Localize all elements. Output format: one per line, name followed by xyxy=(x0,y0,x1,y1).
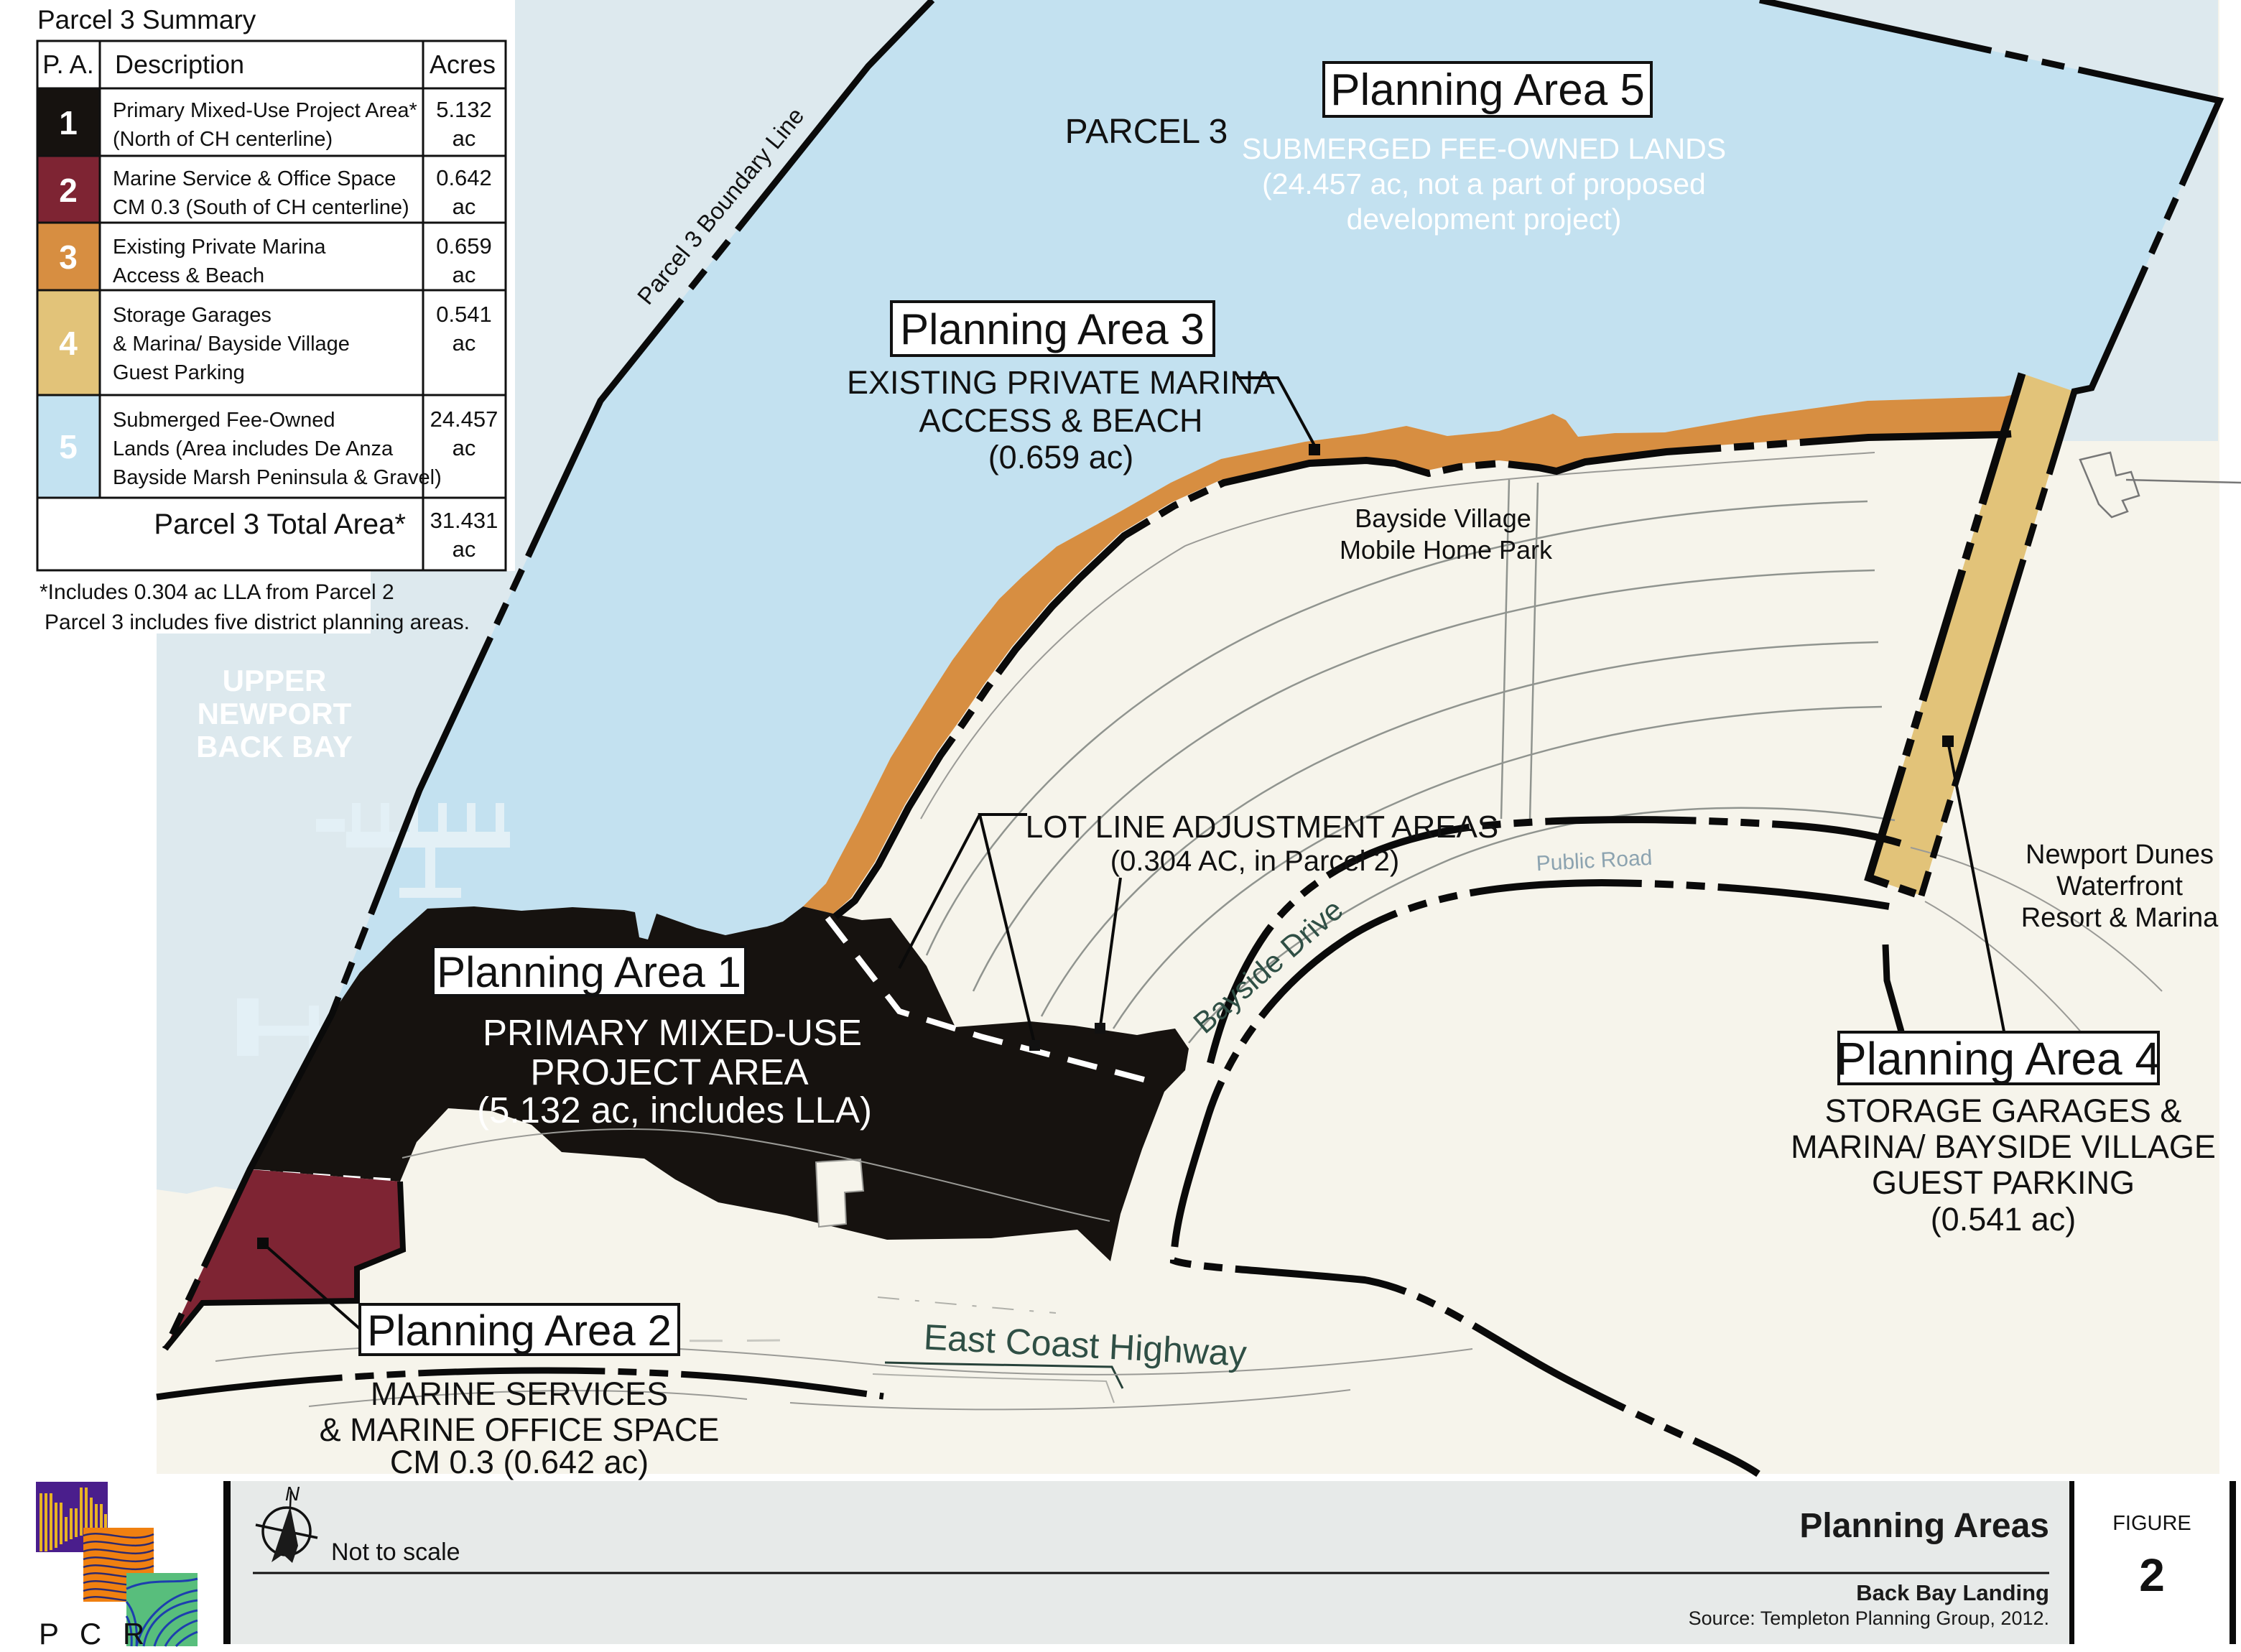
svg-text:ac: ac xyxy=(453,435,476,460)
svg-text:Back Bay Landing: Back Bay Landing xyxy=(1856,1580,2049,1605)
svg-text:CM 0.3 (South of CH centerline: CM 0.3 (South of CH centerline) xyxy=(113,196,409,219)
svg-text:Bayside Village: Bayside Village xyxy=(1355,504,1531,533)
svg-text:Mobile Home Park: Mobile Home Park xyxy=(1340,535,1553,565)
svg-text:Submerged Fee-Owned: Submerged Fee-Owned xyxy=(113,409,335,432)
svg-text:(24.457 ac, not a part of prop: (24.457 ac, not a part of proposed xyxy=(1262,167,1706,200)
svg-text:MARINA/ BAYSIDE VILLAGE: MARINA/ BAYSIDE VILLAGE xyxy=(1791,1128,2216,1165)
svg-text:Waterfront: Waterfront xyxy=(2056,871,2183,901)
svg-text:PARCEL 3: PARCEL 3 xyxy=(1065,113,1228,151)
svg-text:LOT LINE ADJUSTMENT AREAS: LOT LINE ADJUSTMENT AREAS xyxy=(1026,809,1499,845)
svg-text:(North of CH centerline): (North of CH centerline) xyxy=(113,128,333,151)
svg-text:Bayside Marsh Peninsula & Grav: Bayside Marsh Peninsula & Gravel) xyxy=(113,466,442,489)
svg-text:24.457: 24.457 xyxy=(430,407,498,432)
svg-text:NEWPORT: NEWPORT xyxy=(198,697,352,730)
svg-text:Existing Private Marina: Existing Private Marina xyxy=(113,236,326,259)
svg-text:4: 4 xyxy=(59,325,78,362)
svg-text:SUBMERGED FEE-OWNED LANDS: SUBMERGED FEE-OWNED LANDS xyxy=(1242,132,1726,165)
svg-text:31.431: 31.431 xyxy=(430,508,498,533)
svg-text:N: N xyxy=(285,1482,300,1505)
svg-text:PROJECT AREA: PROJECT AREA xyxy=(530,1052,808,1092)
svg-text:Parcel 3 Total Area*: Parcel 3 Total Area* xyxy=(154,509,406,540)
svg-text:2: 2 xyxy=(2139,1549,2165,1601)
svg-text:Planning Area 1: Planning Area 1 xyxy=(437,948,741,996)
svg-text:Access & Beach: Access & Beach xyxy=(113,264,264,287)
svg-text:Resort & Marina: Resort & Marina xyxy=(2021,903,2219,933)
svg-text:Not to scale: Not to scale xyxy=(331,1539,460,1566)
svg-text:(0.541 ac): (0.541 ac) xyxy=(1931,1201,2077,1238)
svg-text:Planning Area 5: Planning Area 5 xyxy=(1330,65,1645,115)
svg-text:P. A.: P. A. xyxy=(42,50,93,79)
svg-text:Parcel 3 includes five distric: Parcel 3 includes five district planning… xyxy=(45,611,470,634)
svg-text:1: 1 xyxy=(59,104,78,141)
svg-text:FIGURE: FIGURE xyxy=(2112,1512,2191,1535)
svg-text:ACCESS & BEACH: ACCESS & BEACH xyxy=(919,402,1202,439)
svg-text:ac: ac xyxy=(453,537,476,562)
svg-text:5.132: 5.132 xyxy=(436,97,492,122)
svg-text:*Includes 0.304 ac LLA from Pa: *Includes 0.304 ac LLA from Parcel 2 xyxy=(40,580,394,604)
svg-text:Acres: Acres xyxy=(430,50,496,79)
svg-text:ac: ac xyxy=(453,194,476,219)
svg-text:Lands (Area includes De Anza: Lands (Area includes De Anza xyxy=(113,437,394,460)
svg-text:& Marina/ Bayside Village: & Marina/ Bayside Village xyxy=(113,333,350,356)
svg-text:Guest Parking: Guest Parking xyxy=(113,361,245,384)
svg-text:development project): development project) xyxy=(1347,203,1622,236)
svg-text:2: 2 xyxy=(59,172,78,209)
svg-text:ac: ac xyxy=(453,126,476,151)
svg-text:GUEST PARKING: GUEST PARKING xyxy=(1872,1164,2135,1201)
svg-text:(0.304 AC, in Parcel 2): (0.304 AC, in Parcel 2) xyxy=(1110,845,1399,877)
svg-text:Planning Area 3: Planning Area 3 xyxy=(900,305,1205,353)
svg-text:Primary Mixed-Use Project Area: Primary Mixed-Use Project Area* xyxy=(113,99,417,122)
svg-text:0.642: 0.642 xyxy=(436,165,492,190)
svg-text:0.659: 0.659 xyxy=(436,233,492,259)
svg-text:P C R: P C R xyxy=(39,1617,151,1651)
svg-text:Description: Description xyxy=(115,50,244,79)
svg-text:Planning Area 2: Planning Area 2 xyxy=(367,1307,672,1355)
svg-text:Planning Area 4: Planning Area 4 xyxy=(1836,1033,2161,1085)
svg-text:(5.132 ac, includes LLA): (5.132 ac, includes LLA) xyxy=(477,1090,872,1131)
svg-text:Storage Garages: Storage Garages xyxy=(113,304,272,327)
svg-text:Planning Areas: Planning Areas xyxy=(1799,1507,2049,1545)
svg-text:MARINE SERVICES: MARINE SERVICES xyxy=(371,1375,668,1412)
svg-text:PRIMARY MIXED-USE: PRIMARY MIXED-USE xyxy=(483,1012,862,1053)
svg-text:ac: ac xyxy=(453,330,476,356)
svg-text:5: 5 xyxy=(59,428,78,465)
svg-text:3: 3 xyxy=(59,238,78,276)
svg-text:Newport Dunes: Newport Dunes xyxy=(2026,840,2214,870)
svg-text:BACK BAY: BACK BAY xyxy=(196,730,353,764)
svg-text:Parcel 3 Summary: Parcel 3 Summary xyxy=(37,5,256,34)
svg-text:0.541: 0.541 xyxy=(436,302,492,327)
svg-text:(0.659 ac): (0.659 ac) xyxy=(988,439,1134,475)
svg-text:UPPER: UPPER xyxy=(223,664,327,697)
svg-text:ac: ac xyxy=(453,262,476,287)
svg-text:STORAGE GARAGES &: STORAGE GARAGES & xyxy=(1825,1092,2182,1129)
svg-text:EXISTING PRIVATE MARINA: EXISTING PRIVATE MARINA xyxy=(847,364,1275,401)
svg-text:& MARINE OFFICE SPACE: & MARINE OFFICE SPACE xyxy=(320,1411,720,1448)
svg-text:Source: Templeton Planning Gro: Source: Templeton Planning Group, 2012. xyxy=(1689,1607,2049,1629)
svg-text:Marine Service & Office Space: Marine Service & Office Space xyxy=(113,167,396,190)
svg-text:CM 0.3 (0.642 ac): CM 0.3 (0.642 ac) xyxy=(390,1444,649,1480)
